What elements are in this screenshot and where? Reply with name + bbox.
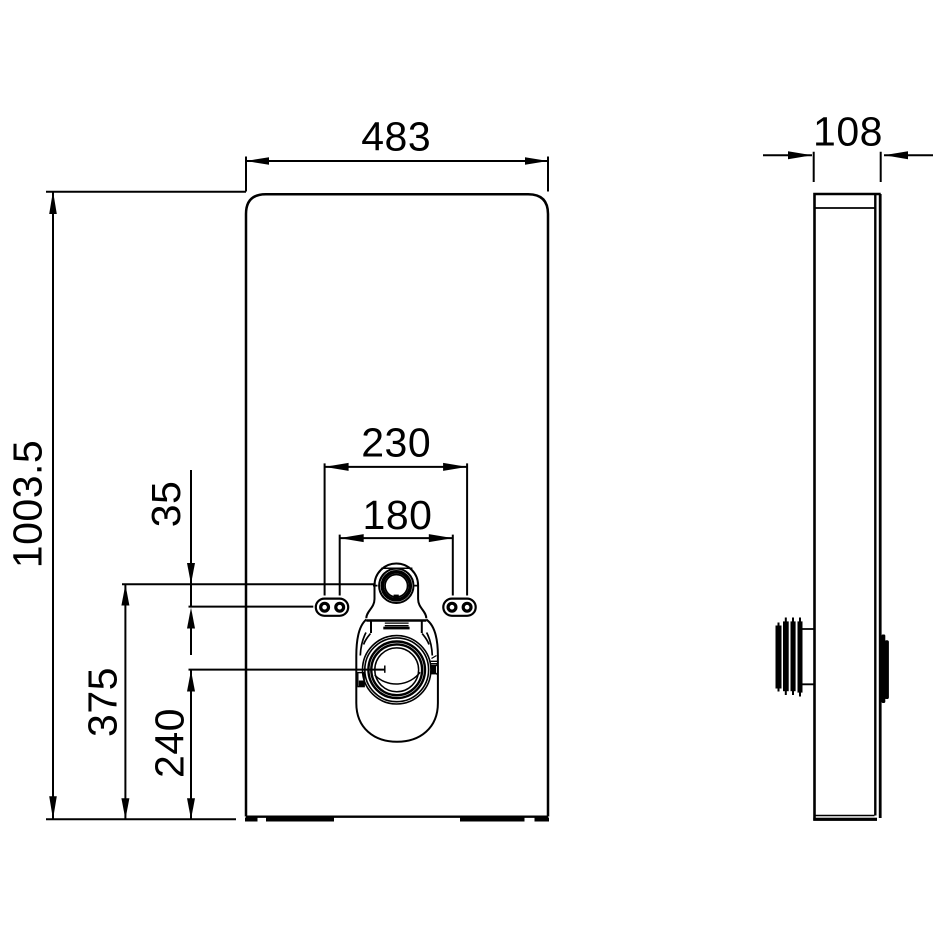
svg-text:180: 180 (363, 492, 433, 538)
svg-text:240: 240 (147, 708, 193, 778)
svg-text:108: 108 (813, 109, 883, 155)
svg-text:35: 35 (143, 481, 189, 528)
svg-text:483: 483 (361, 114, 431, 160)
svg-text:375: 375 (80, 667, 126, 737)
svg-text:1003.5: 1003.5 (5, 440, 51, 568)
svg-text:230: 230 (361, 420, 431, 466)
